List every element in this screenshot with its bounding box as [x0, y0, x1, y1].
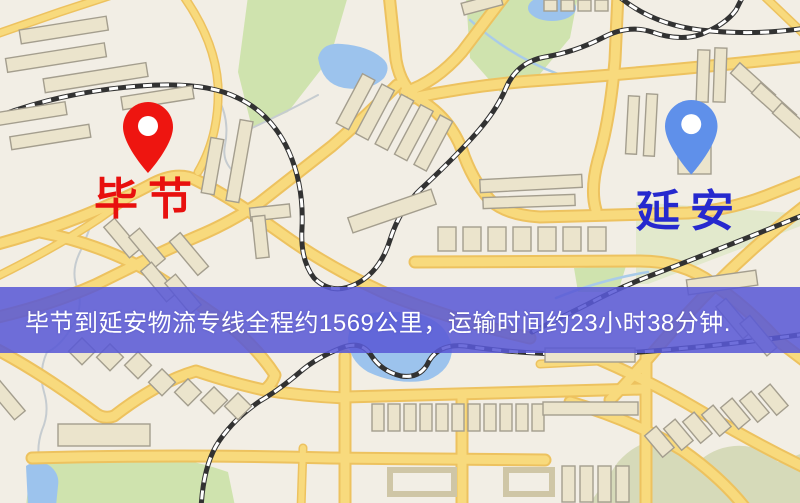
map-canvas[interactable]: 毕节 延安 毕节到延安物流专线全程约1569公里，运输时间约23小时38分钟. [0, 0, 800, 503]
destination-label: 延安 [636, 187, 744, 236]
origin-pin[interactable] [123, 102, 173, 173]
route-info-text: 毕节到延安物流专线全程约1569公里，运输时间约23小时38分钟. [0, 303, 731, 338]
map-illustration: 毕节 延安 [0, 0, 800, 503]
route-info-banner: 毕节到延安物流专线全程约1569公里，运输时间约23小时38分钟. [0, 287, 800, 353]
origin-pin-shape [123, 102, 173, 173]
destination-pin-hole [681, 114, 701, 134]
origin-label: 毕节 [94, 175, 202, 224]
origin-pin-hole [138, 116, 158, 136]
